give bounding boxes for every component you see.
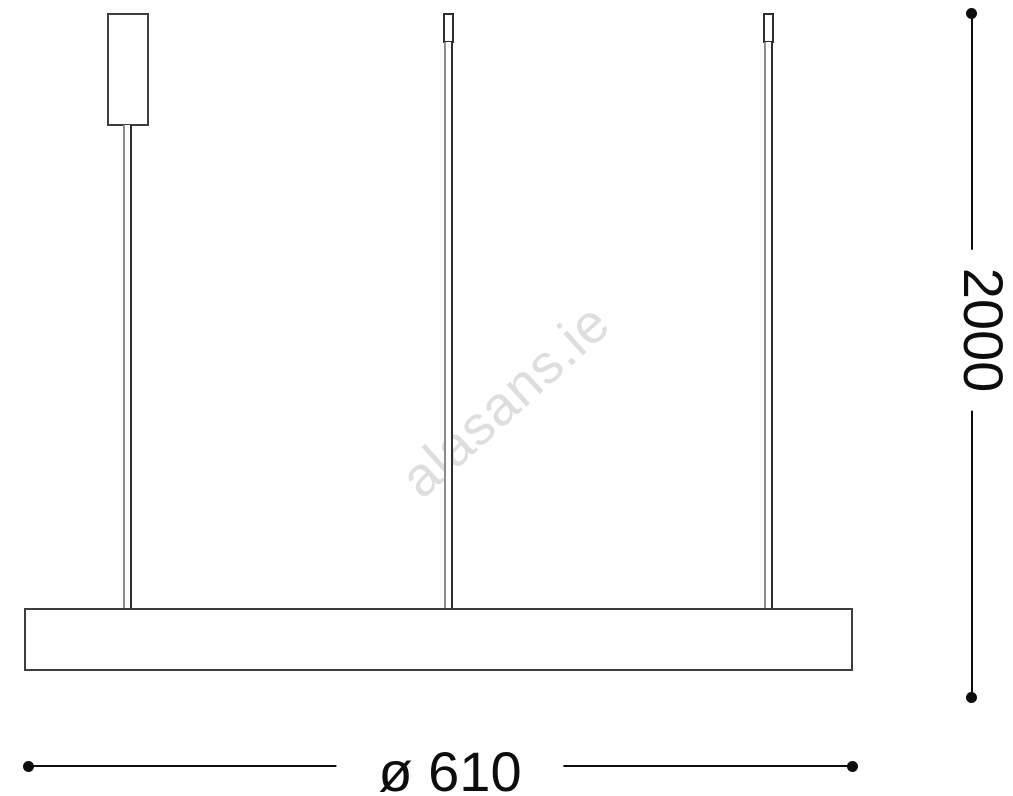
diameter-dimension-label: ø 610 xyxy=(336,744,563,796)
suspension-rod-right xyxy=(764,42,773,608)
ceiling-canopy xyxy=(107,13,149,126)
height-dimension-label: 2000 xyxy=(955,250,1011,411)
suspension-rod-middle xyxy=(444,42,453,608)
lamp-bar-body xyxy=(24,608,853,671)
dimension-endpoint-dot-top xyxy=(966,8,977,19)
pendant-lamp-dimension-drawing: alasans.ie ø 610 2000 xyxy=(0,0,1013,796)
dimension-endpoint-dot-left xyxy=(23,761,34,772)
dimension-endpoint-dot-bottom xyxy=(966,692,977,703)
rod-top-connector-right xyxy=(763,13,774,43)
watermark: alasans.ie xyxy=(388,290,622,510)
dimension-endpoint-dot-right xyxy=(847,761,858,772)
rod-top-connector-middle xyxy=(443,13,454,43)
suspension-rod-left xyxy=(123,125,132,608)
